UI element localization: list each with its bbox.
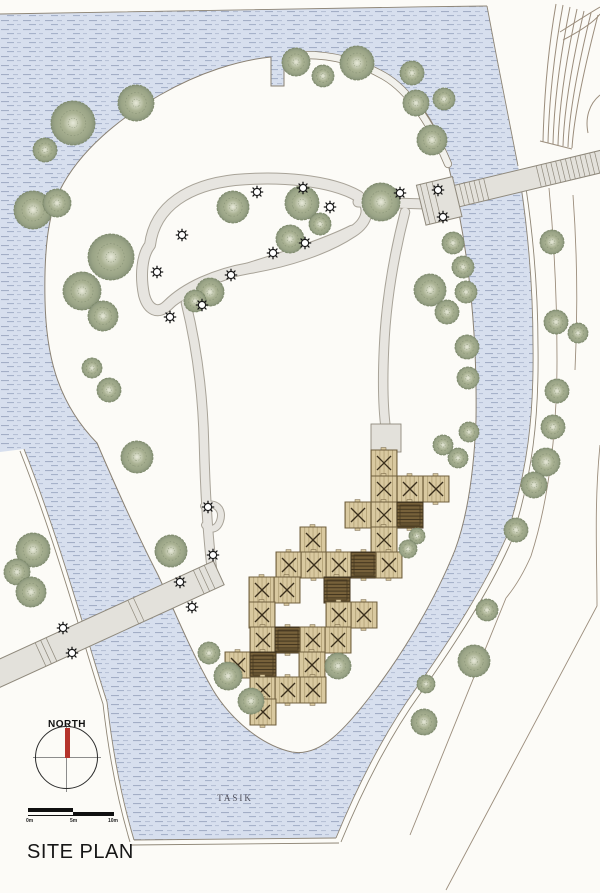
tree-icon [212,186,253,227]
tree-icon [51,101,95,145]
tree-icon [567,322,590,345]
compass-rose-icon [35,726,99,790]
tree-icon [197,641,221,665]
lamp-post-icon [202,501,213,512]
tree-icon [459,422,479,442]
lamp-post-icon [324,201,335,212]
scale-bar: 0m 5m 10m [28,806,120,824]
scale-tick-10: 10m [108,818,118,824]
tree-icon [454,641,494,681]
module-floor [397,502,423,528]
tree-icon [80,356,105,381]
page-title: SITE PLAN [27,841,134,864]
tree-icon [407,705,441,739]
module-floor [324,577,350,603]
tree-canopy [214,662,243,691]
lamp-post-icon [176,229,187,240]
stair-module [351,550,377,581]
footpath [142,179,367,311]
deck-module [371,525,397,556]
deck-module [345,500,371,531]
deck-module [275,675,301,706]
scale-bar-baseline [28,815,114,816]
deck-module [325,625,351,656]
terraced-road-line [587,95,600,133]
lamp-post-icon [66,647,77,658]
tree-icon [116,436,157,477]
tree-canopy [407,705,441,739]
lamp-post-icon [267,247,278,258]
tree-icon [214,662,243,691]
site-plan-map: NORTH 0m 5m 10m TASIK SITE PLAN [0,0,600,893]
tree-canopy [212,186,253,227]
tree-icon [539,229,565,255]
tree-canopy [93,374,125,406]
deck-module [423,474,449,505]
tree-icon [153,533,188,568]
deck-module [300,675,326,706]
lamp-post-icon [186,601,197,612]
tree-canopy [322,650,354,682]
lamp-post-icon [207,549,218,560]
tree-canopy [51,101,95,145]
terraced-road-line [540,141,572,149]
lamp-post-icon [225,269,236,280]
tree-canopy [197,641,221,665]
stair-module [275,625,301,656]
deck-module [351,600,377,631]
lamp-post-icon [174,576,185,587]
lamp-post-icon [196,299,207,310]
tree-canopy [116,436,157,477]
tree-icon [472,595,502,625]
contour-line [573,195,577,370]
tree-icon [539,413,568,442]
lamp-post-icon [151,266,162,277]
lamp-post-icon [297,182,308,193]
river-bank-line [131,843,339,845]
tree-canopy [539,229,565,255]
scale-bar-segment-1 [28,808,73,812]
tree-canopy [540,374,573,407]
tree-canopy [309,62,337,90]
tree-canopy [567,322,590,345]
tree-canopy [454,641,494,681]
tree-icon [309,62,337,90]
tree-icon [540,374,573,407]
lamp-post-icon [57,622,68,633]
terraced-road-line [548,5,563,143]
lake-label: TASIK [200,793,270,803]
tree-icon [322,650,354,682]
lamp-post-icon [164,311,175,322]
tree-icon [93,374,125,406]
tree-canopy [539,413,568,442]
deck-module [274,575,300,606]
compass-north-needle [65,728,70,758]
lamp-post-icon [251,186,262,197]
lamp-post-icon [394,187,405,198]
scale-tick-0: 0m [26,818,33,824]
deck-module [376,550,402,581]
lamp-post-icon [299,237,310,248]
module-floor [351,552,377,578]
scale-tick-5: 5m [70,818,77,824]
deck-module [301,550,327,581]
terraced-road-line [563,11,584,146]
stair-module [397,500,423,531]
tree-canopy [459,422,479,442]
tree-canopy [80,356,105,381]
tree-canopy [153,533,188,568]
lamp-post-icon [437,211,448,222]
module-floor [250,652,276,678]
tree-canopy [472,595,502,625]
lamp-post-icon [432,184,443,195]
module-floor [275,627,301,653]
